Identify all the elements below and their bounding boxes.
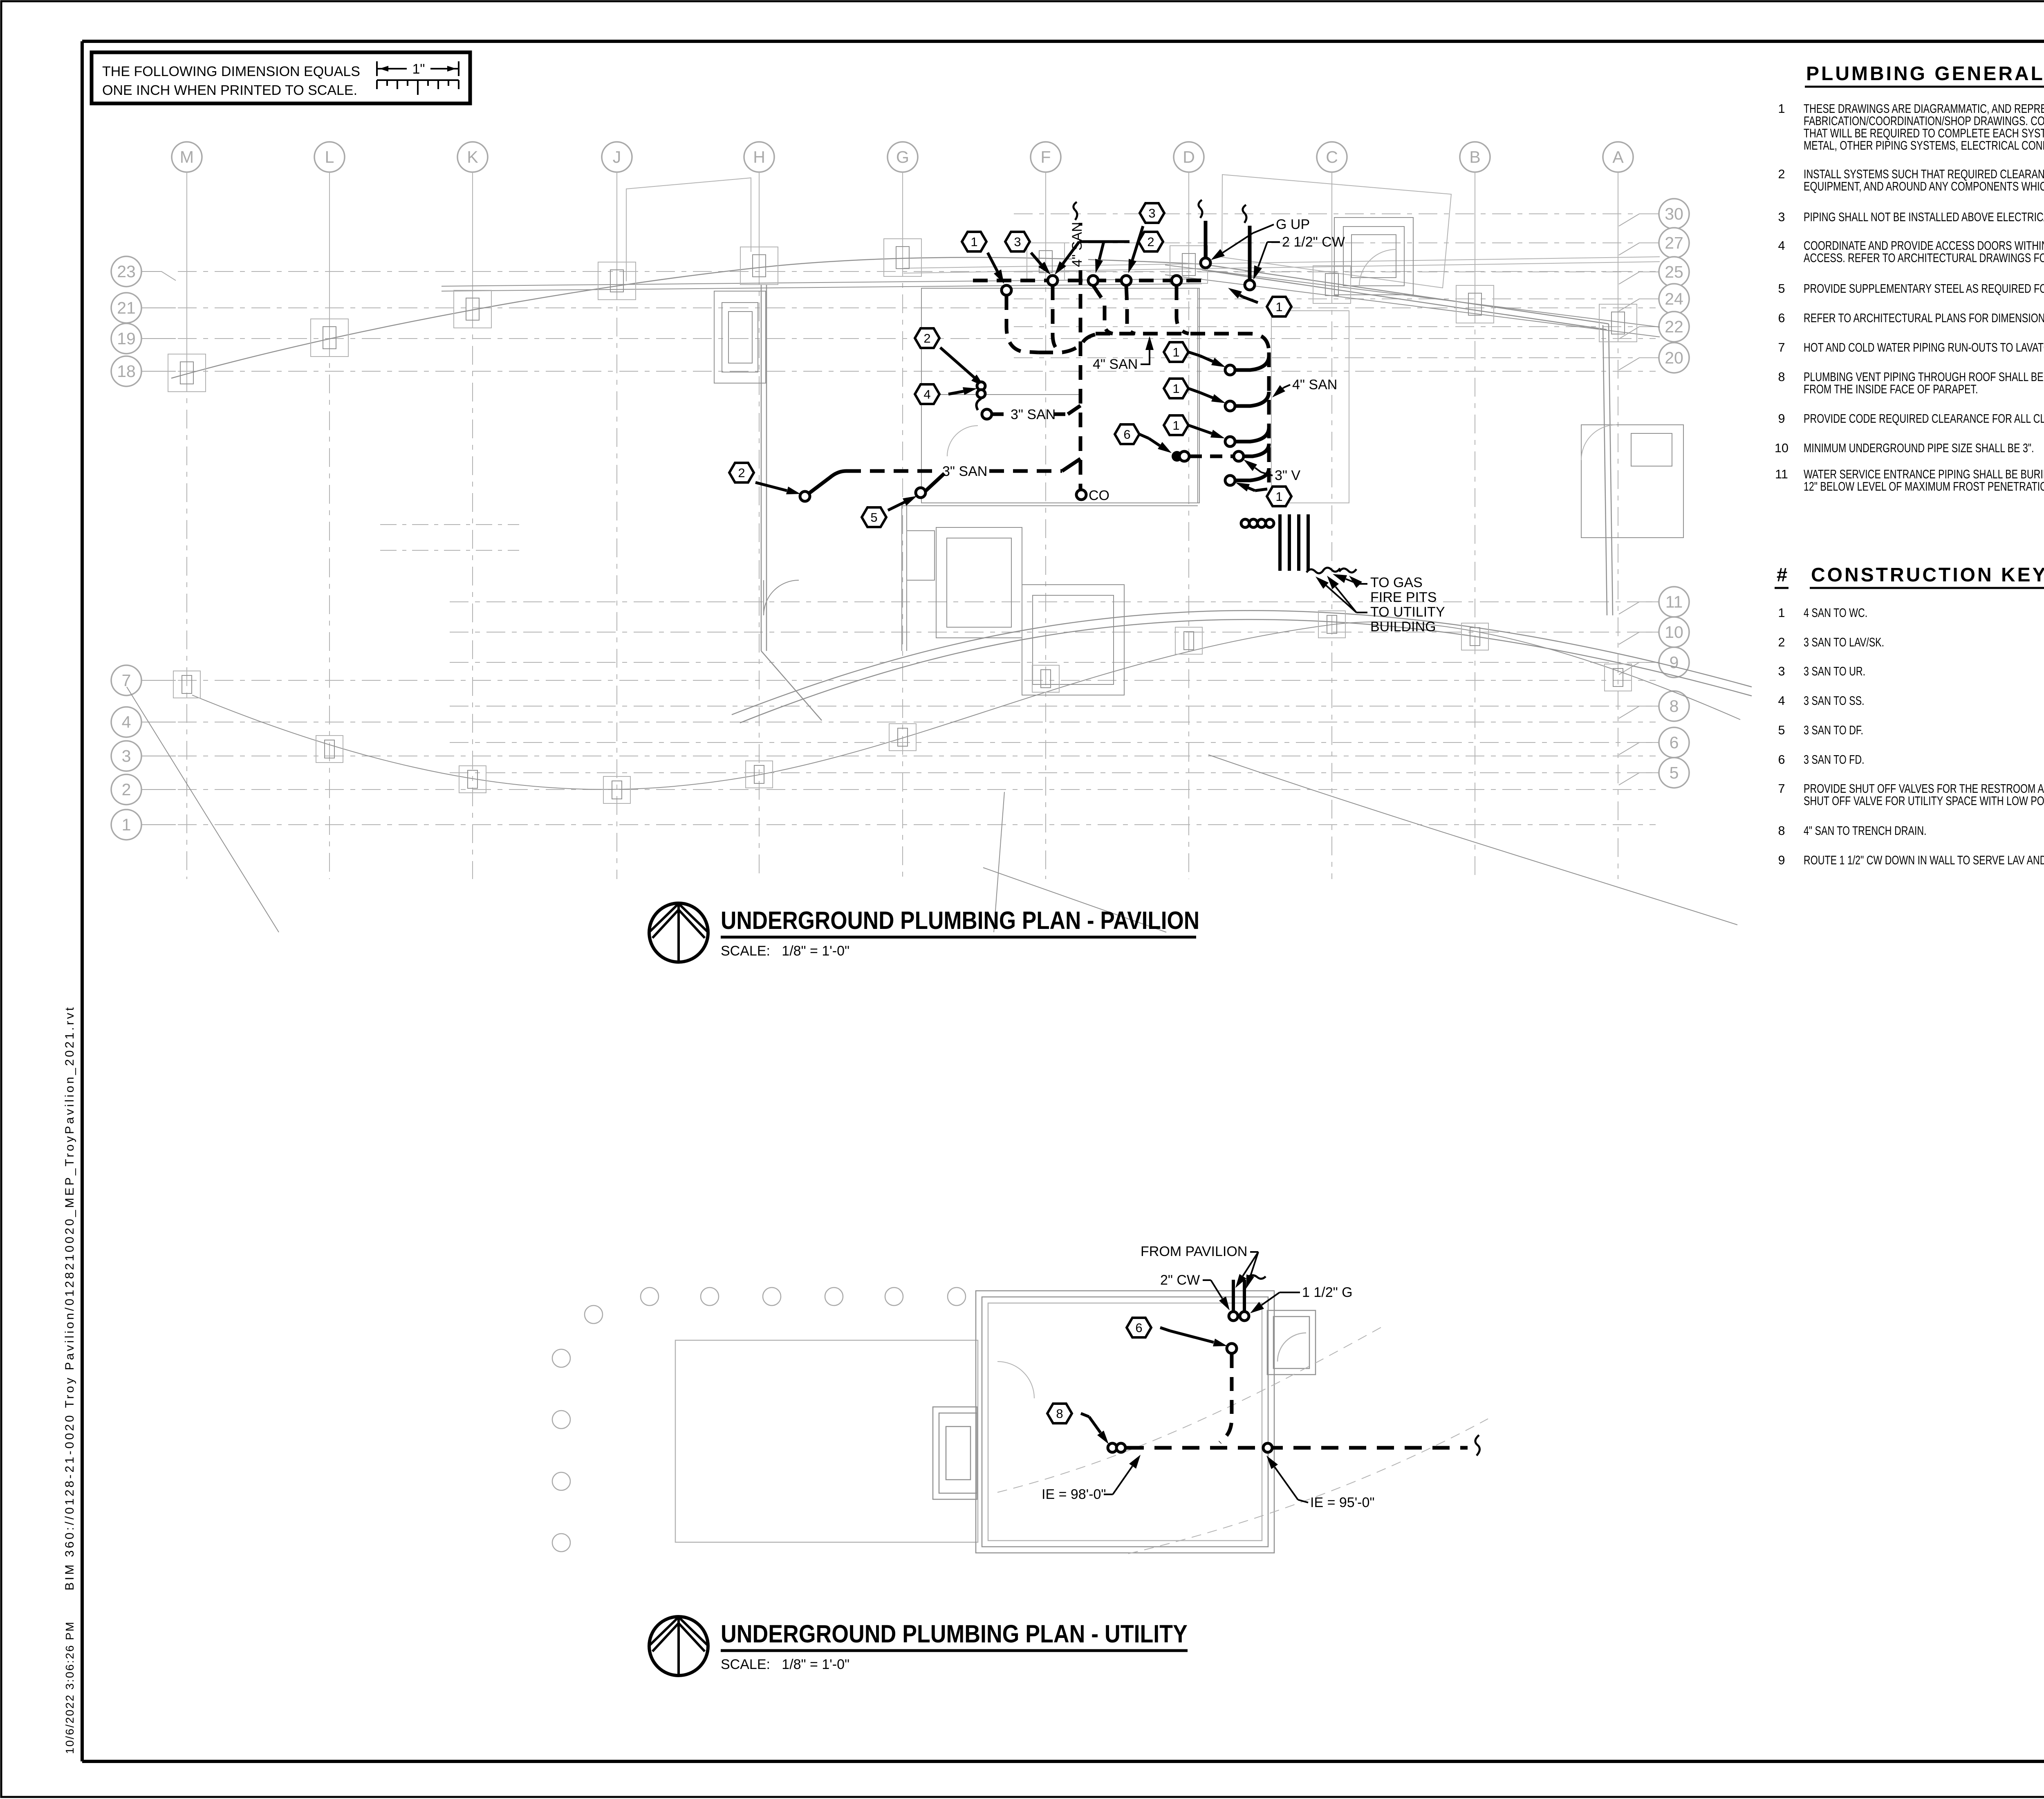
svg-text:2 1/2" CW: 2 1/2" CW bbox=[1282, 234, 1345, 250]
svg-text:PROVIDE SUPPLEMENTARY STEEL AS: PROVIDE SUPPLEMENTARY STEEL AS REQUIRED … bbox=[1804, 281, 2044, 296]
svg-text:7: 7 bbox=[122, 671, 131, 690]
svg-text:TO GAS: TO GAS bbox=[1370, 575, 1423, 590]
svg-text:9: 9 bbox=[1778, 853, 1785, 867]
svg-text:EQUIPMENT, AND AROUND ANY COMP: EQUIPMENT, AND AROUND ANY COMPONENTS WHI… bbox=[1804, 179, 2044, 193]
svg-text:M: M bbox=[180, 148, 194, 166]
svg-text:1: 1 bbox=[1778, 606, 1785, 620]
svg-text:1: 1 bbox=[1778, 102, 1785, 116]
svg-text:1: 1 bbox=[1172, 345, 1179, 359]
svg-text:#: # bbox=[1777, 564, 1787, 585]
svg-text:25: 25 bbox=[1665, 262, 1683, 281]
svg-text:6: 6 bbox=[1135, 1321, 1142, 1335]
svg-text:8: 8 bbox=[1056, 1406, 1063, 1421]
svg-text:21: 21 bbox=[117, 298, 136, 317]
svg-text:4" SAN TO TRENCH DRAIN.: 4" SAN TO TRENCH DRAIN. bbox=[1804, 823, 1927, 838]
svg-text:1": 1" bbox=[412, 61, 425, 77]
svg-text:20: 20 bbox=[1665, 348, 1683, 367]
svg-text:SCALE: 1/8" = 1'-0": SCALE: 1/8" = 1'-0" bbox=[721, 1657, 849, 1672]
svg-text:MINIMUM UNDERGROUND PIPE SIZE: MINIMUM UNDERGROUND PIPE SIZE SHALL BE 3… bbox=[1804, 441, 2034, 455]
svg-text:SHUT OFF VALVE FOR UTILITY SPA: SHUT OFF VALVE FOR UTILITY SPACE WITH LO… bbox=[1804, 794, 2044, 808]
svg-text:ROUTE 1 1/2" CW DOWN IN WALL T: ROUTE 1 1/2" CW DOWN IN WALL TO SERVE LA… bbox=[1804, 853, 2044, 867]
svg-text:8: 8 bbox=[1778, 824, 1785, 838]
svg-text:HOT AND COLD WATER PIPING RUN-: HOT AND COLD WATER PIPING RUN-OUTS TO LA… bbox=[1804, 340, 2044, 354]
svg-text:1 1/2" G: 1 1/2" G bbox=[1302, 1285, 1353, 1300]
svg-text:PROVIDE CODE REQUIRED CLEARANC: PROVIDE CODE REQUIRED CLEARANCE FOR ALL … bbox=[1804, 411, 2044, 426]
svg-text:11: 11 bbox=[1665, 592, 1683, 611]
svg-text:FROM THE INSIDE FACE OF PARAPE: FROM THE INSIDE FACE OF PARAPET. bbox=[1804, 382, 1978, 396]
svg-text:PIPING SHALL NOT BE INSTALLED: PIPING SHALL NOT BE INSTALLED ABOVE ELEC… bbox=[1804, 210, 2044, 224]
svg-text:5: 5 bbox=[870, 510, 877, 525]
svg-text:8: 8 bbox=[1778, 370, 1785, 384]
svg-text:6: 6 bbox=[1778, 753, 1785, 767]
svg-text:4" SAN: 4" SAN bbox=[1292, 377, 1337, 393]
svg-text:1: 1 bbox=[1275, 489, 1282, 504]
svg-text:7: 7 bbox=[1778, 341, 1785, 354]
svg-text:8: 8 bbox=[1670, 697, 1679, 716]
svg-text:THE FOLLOWING DIMENSION EQUALS: THE FOLLOWING DIMENSION EQUALS bbox=[102, 64, 360, 79]
svg-text:1: 1 bbox=[970, 235, 977, 249]
svg-text:22: 22 bbox=[1665, 317, 1683, 336]
svg-text:3 SAN TO DF.: 3 SAN TO DF. bbox=[1804, 723, 1863, 737]
svg-text:11: 11 bbox=[1775, 467, 1788, 481]
svg-text:BUILDING: BUILDING bbox=[1370, 619, 1436, 635]
svg-text:CO: CO bbox=[1089, 488, 1109, 503]
svg-text:K: K bbox=[467, 148, 478, 166]
svg-text:3 SAN TO UR.: 3 SAN TO UR. bbox=[1804, 664, 1865, 678]
svg-text:B: B bbox=[1469, 148, 1480, 166]
svg-text:9: 9 bbox=[1670, 653, 1679, 672]
svg-text:ONE INCH WHEN PRINTED TO SCALE: ONE INCH WHEN PRINTED TO SCALE. bbox=[102, 83, 357, 98]
svg-text:FROM PAVILION: FROM PAVILION bbox=[1141, 1244, 1247, 1259]
svg-text:2: 2 bbox=[1778, 635, 1785, 649]
svg-text:H: H bbox=[753, 148, 765, 166]
svg-text:3: 3 bbox=[1014, 235, 1021, 249]
svg-text:2: 2 bbox=[1147, 235, 1154, 249]
svg-text:7: 7 bbox=[1778, 782, 1785, 796]
svg-text:23: 23 bbox=[117, 262, 136, 281]
svg-text:19: 19 bbox=[117, 329, 136, 348]
svg-text:18: 18 bbox=[117, 362, 136, 381]
svg-text:6: 6 bbox=[1778, 311, 1785, 325]
svg-text:27: 27 bbox=[1665, 233, 1683, 252]
svg-text:UNDERGROUND PLUMBING PLAN - PA: UNDERGROUND PLUMBING PLAN - PAVILION bbox=[721, 907, 1199, 935]
svg-text:10/6/2022 3:06:26 PM: 10/6/2022 3:06:26 PM bbox=[63, 1621, 76, 1754]
svg-text:UNDERGROUND PLUMBING PLAN - UT: UNDERGROUND PLUMBING PLAN - UTILITY bbox=[721, 1620, 1188, 1648]
svg-text:6: 6 bbox=[1123, 427, 1130, 442]
svg-text:1: 1 bbox=[1275, 300, 1282, 314]
svg-text:CONSTRUCTION KEY NOTES:: CONSTRUCTION KEY NOTES: bbox=[1811, 564, 2044, 586]
svg-text:12" BELOW LEVEL OF MAXIMUM FRO: 12" BELOW LEVEL OF MAXIMUM FROST PENETRA… bbox=[1804, 479, 2044, 493]
svg-text:PLUMBING GENERAL NOTES:: PLUMBING GENERAL NOTES: bbox=[1806, 63, 2044, 85]
svg-text:G UP: G UP bbox=[1276, 217, 1310, 232]
svg-text:BIM 360://0128-21-0020 Troy Pa: BIM 360://0128-21-0020 Troy Pavilion/012… bbox=[63, 1005, 76, 1590]
svg-text:IE = 95'-0": IE = 95'-0" bbox=[1310, 1495, 1374, 1510]
svg-text:4: 4 bbox=[122, 713, 131, 731]
svg-text:3 SAN TO LAV/SK.: 3 SAN TO LAV/SK. bbox=[1804, 635, 1884, 649]
svg-text:G: G bbox=[896, 148, 909, 166]
svg-text:2" CW: 2" CW bbox=[1160, 1272, 1200, 1288]
svg-text:3 SAN TO SS.: 3 SAN TO SS. bbox=[1804, 693, 1865, 708]
svg-text:2: 2 bbox=[923, 331, 930, 345]
svg-text:2: 2 bbox=[1778, 167, 1785, 181]
svg-text:SCALE: 1/8" = 1'-0": SCALE: 1/8" = 1'-0" bbox=[721, 943, 849, 959]
svg-text:C: C bbox=[1326, 148, 1338, 166]
svg-text:A: A bbox=[1612, 148, 1624, 166]
svg-text:FIRE PITS: FIRE PITS bbox=[1370, 590, 1437, 605]
svg-text:1: 1 bbox=[1172, 381, 1179, 396]
svg-text:REFER TO ARCHITECTURAL PLANS F: REFER TO ARCHITECTURAL PLANS FOR DIMENSI… bbox=[1804, 311, 2044, 325]
svg-text:9: 9 bbox=[1778, 412, 1785, 426]
svg-text:IE = 98'-0": IE = 98'-0" bbox=[1042, 1487, 1106, 1502]
svg-text:4" SAN: 4" SAN bbox=[1093, 357, 1138, 372]
svg-text:4: 4 bbox=[1778, 239, 1785, 253]
svg-text:5: 5 bbox=[1778, 723, 1785, 737]
svg-text:4: 4 bbox=[1778, 694, 1785, 708]
svg-text:4 SAN TO WC.: 4 SAN TO WC. bbox=[1804, 606, 1867, 620]
svg-text:L: L bbox=[325, 148, 334, 166]
svg-text:3" V: 3" V bbox=[1275, 468, 1300, 483]
svg-text:10: 10 bbox=[1775, 441, 1788, 455]
svg-text:24: 24 bbox=[1665, 289, 1683, 308]
svg-text:METAL, OTHER PIPING SYSTEMS, E: METAL, OTHER PIPING SYSTEMS, ELECTRICAL … bbox=[1804, 138, 2044, 153]
svg-text:6: 6 bbox=[1670, 733, 1679, 752]
svg-text:1: 1 bbox=[122, 815, 131, 834]
svg-text:3: 3 bbox=[1148, 206, 1155, 220]
svg-text:5: 5 bbox=[1778, 282, 1785, 296]
svg-text:3" SAN: 3" SAN bbox=[942, 464, 987, 479]
svg-text:TO UTILITY: TO UTILITY bbox=[1370, 604, 1445, 620]
svg-text:J: J bbox=[613, 148, 621, 166]
svg-text:30: 30 bbox=[1665, 204, 1683, 223]
svg-text:5: 5 bbox=[1670, 763, 1679, 782]
svg-text:3" SAN: 3" SAN bbox=[1011, 407, 1056, 422]
svg-text:ACCESS. REFER TO ARCHITECTURAL: ACCESS. REFER TO ARCHITECTURAL DRAWINGS … bbox=[1804, 251, 2044, 265]
svg-text:3: 3 bbox=[122, 747, 131, 765]
svg-text:2: 2 bbox=[122, 780, 131, 799]
svg-text:D: D bbox=[1183, 148, 1195, 166]
svg-text:10: 10 bbox=[1665, 623, 1683, 642]
svg-text:3 SAN TO FD.: 3 SAN TO FD. bbox=[1804, 752, 1865, 767]
svg-text:3: 3 bbox=[1778, 664, 1785, 678]
svg-text:F: F bbox=[1040, 148, 1051, 166]
svg-text:2: 2 bbox=[738, 466, 745, 480]
svg-text:3: 3 bbox=[1778, 210, 1785, 224]
svg-text:1: 1 bbox=[1172, 418, 1179, 433]
svg-text:4: 4 bbox=[923, 387, 930, 402]
